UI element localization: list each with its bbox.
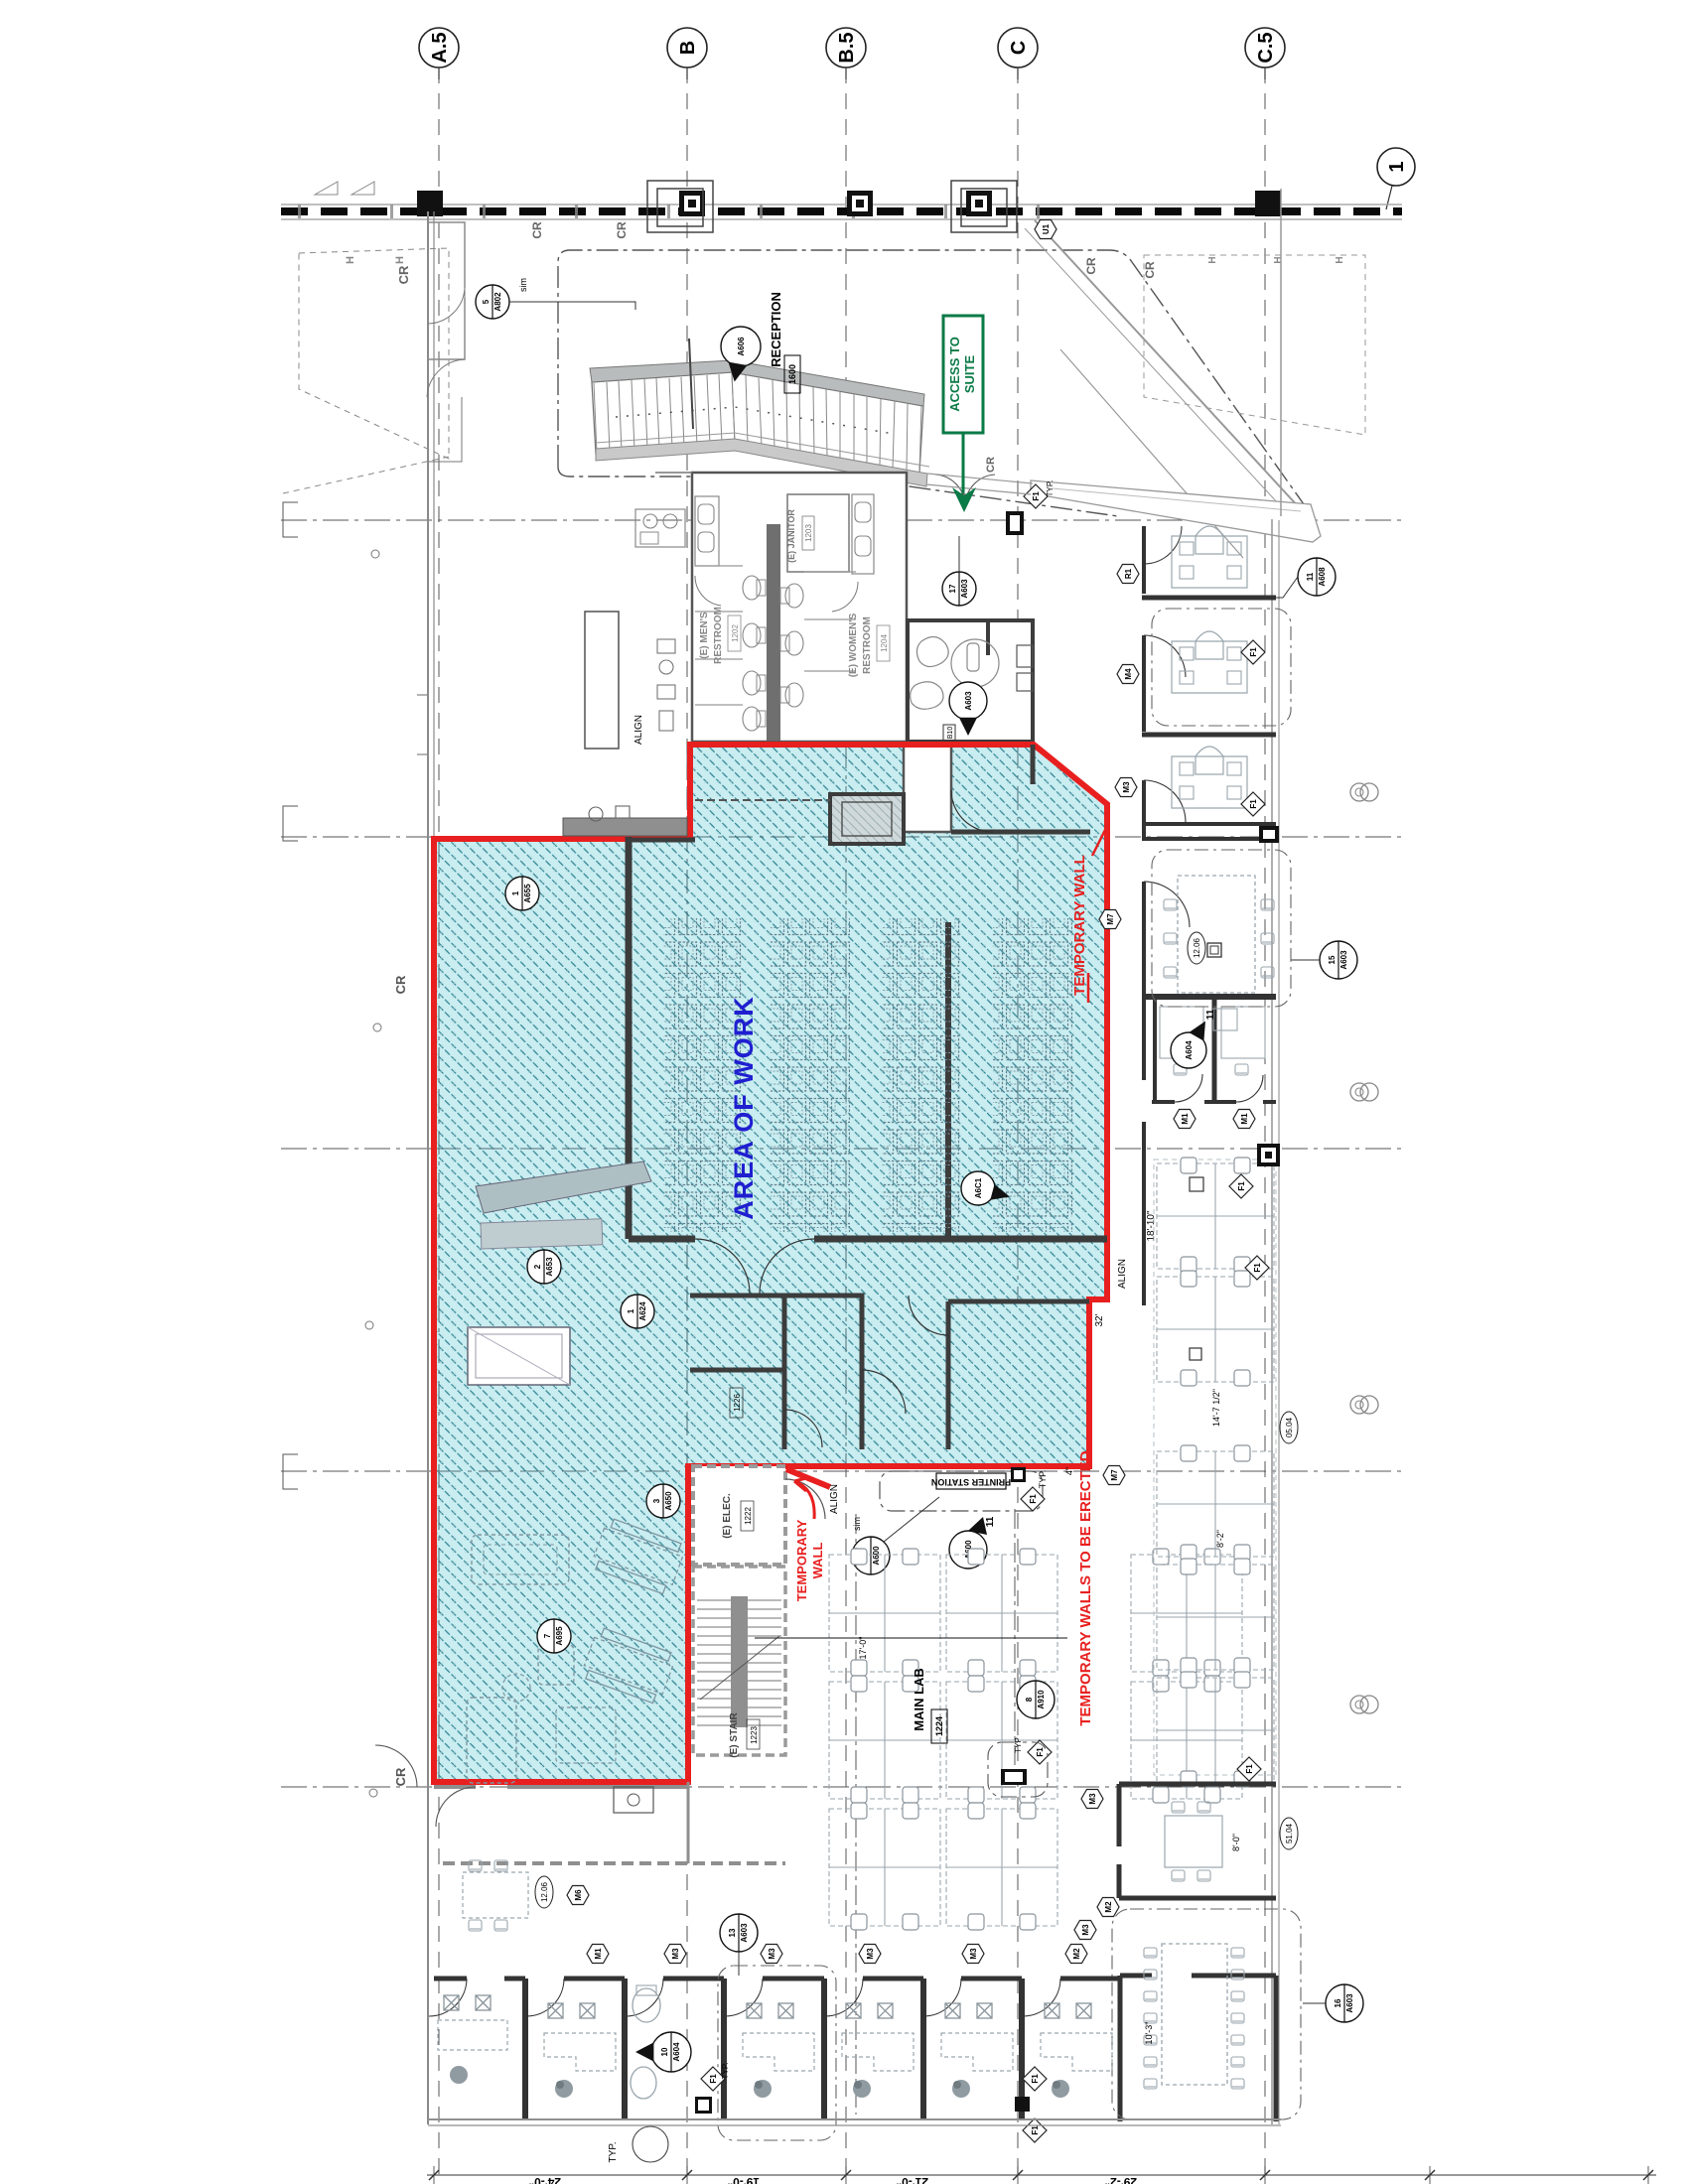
svg-text:sim: sim — [852, 1517, 862, 1531]
svg-text:1600: 1600 — [787, 364, 797, 384]
svg-text:8'-2": 8'-2" — [1215, 1530, 1225, 1548]
svg-text:ALIGN: ALIGN — [1117, 1259, 1128, 1289]
svg-text:M7: M7 — [1106, 913, 1115, 925]
svg-text:3: 3 — [652, 1498, 661, 1503]
svg-text:F1: F1 — [1036, 1747, 1045, 1757]
svg-text:19'-0": 19'-0" — [727, 2175, 760, 2184]
svg-text:A650: A650 — [664, 1491, 673, 1511]
svg-text:F1: F1 — [1031, 2125, 1040, 2135]
svg-text:12.06: 12.06 — [540, 1881, 549, 1902]
svg-text:(E) MEN'S: (E) MEN'S — [699, 612, 710, 659]
svg-text:CR: CR — [985, 457, 997, 473]
svg-text:1202: 1202 — [731, 624, 740, 642]
svg-text:B10: B10 — [947, 727, 954, 740]
svg-text:H: H — [1207, 256, 1218, 263]
svg-text:H: H — [1335, 256, 1345, 263]
svg-text:F1: F1 — [1029, 1494, 1038, 1504]
svg-text:R1: R1 — [1124, 568, 1133, 579]
svg-text:ALIGN: ALIGN — [829, 1484, 840, 1514]
svg-text:10: 10 — [660, 2047, 669, 2056]
svg-text:A695: A695 — [555, 1626, 564, 1646]
svg-text:F1: F1 — [1249, 799, 1258, 809]
svg-text:4": 4" — [1064, 1467, 1074, 1475]
svg-text:C: C — [1008, 41, 1030, 55]
svg-text:A6C1: A6C1 — [974, 1177, 983, 1198]
svg-text:F1: F1 — [1245, 1764, 1254, 1774]
svg-text:11: 11 — [1205, 1009, 1216, 1020]
svg-text:05.04: 05.04 — [1285, 1417, 1294, 1437]
svg-text:8'-0": 8'-0" — [1231, 1834, 1241, 1851]
svg-text:CR: CR — [1084, 257, 1098, 275]
svg-text:A.5: A.5 — [429, 32, 451, 63]
svg-text:1204: 1204 — [880, 634, 889, 652]
svg-text:A802: A802 — [493, 292, 502, 312]
svg-text:15: 15 — [1328, 955, 1336, 964]
svg-text:A653: A653 — [545, 1257, 554, 1277]
svg-text:17: 17 — [948, 584, 957, 593]
svg-text:SUITE: SUITE — [962, 355, 977, 394]
svg-text:A603: A603 — [964, 691, 973, 711]
svg-text:A604: A604 — [672, 2042, 681, 2062]
svg-text:H: H — [394, 256, 406, 264]
svg-text:12.06: 12.06 — [1193, 937, 1201, 958]
svg-text:18'-10": 18'-10" — [1146, 1210, 1157, 1241]
svg-text:M3: M3 — [1081, 1924, 1090, 1936]
svg-text:10'-3": 10'-3" — [1144, 2022, 1154, 2045]
svg-text:M7: M7 — [1110, 1469, 1119, 1481]
svg-text:CR: CR — [1143, 261, 1157, 279]
svg-text:M3: M3 — [671, 1948, 680, 1960]
svg-text:M3: M3 — [866, 1948, 875, 1960]
svg-text:A606: A606 — [737, 337, 746, 356]
svg-text:2: 2 — [533, 1264, 542, 1269]
svg-text:RESTROOM: RESTROOM — [713, 607, 724, 664]
svg-text:A603: A603 — [1345, 1993, 1354, 2013]
svg-text:(E) ELEC.: (E) ELEC. — [722, 1493, 733, 1539]
svg-text:F1: F1 — [1032, 491, 1041, 501]
svg-text:M3: M3 — [768, 1948, 776, 1960]
svg-text:1: 1 — [511, 890, 520, 895]
svg-text:(E) STAIR: (E) STAIR — [729, 1712, 740, 1758]
svg-text:RESTROOM: RESTROOM — [862, 616, 873, 674]
svg-text:16: 16 — [1334, 1998, 1342, 2007]
svg-text:AREA OF WORK: AREA OF WORK — [729, 996, 759, 1219]
svg-text:MAIN LAB: MAIN LAB — [912, 1668, 926, 1731]
svg-text:F1: F1 — [709, 2074, 718, 2084]
svg-text:M2: M2 — [1072, 1948, 1081, 1960]
svg-text:M4: M4 — [1124, 668, 1133, 680]
svg-text:TEMPORARY: TEMPORARY — [794, 1519, 809, 1601]
svg-text:A655: A655 — [523, 884, 532, 903]
svg-text:M1: M1 — [1240, 1113, 1249, 1125]
svg-text:14'-7 1/2": 14'-7 1/2" — [1211, 1389, 1221, 1427]
svg-text:RECEPTION: RECEPTION — [769, 292, 783, 367]
svg-text:TYP.: TYP. — [608, 2142, 619, 2163]
svg-text:B.5: B.5 — [836, 32, 858, 63]
svg-text:5: 5 — [482, 299, 491, 304]
svg-text:B: B — [677, 41, 699, 55]
svg-text:(E) JANITOR: (E) JANITOR — [786, 509, 796, 563]
svg-text:1203: 1203 — [804, 524, 813, 542]
svg-text:M6: M6 — [574, 1889, 583, 1901]
svg-text:(E) WOMEN'S: (E) WOMEN'S — [848, 613, 859, 677]
svg-text:29'-2": 29'-2" — [1104, 2175, 1137, 2184]
svg-text:CR: CR — [615, 221, 629, 239]
svg-text:F1: F1 — [1031, 2074, 1040, 2084]
svg-text:M3: M3 — [1122, 781, 1131, 793]
svg-text:CR: CR — [393, 975, 408, 994]
svg-text:TEMPORARY WALL: TEMPORARY WALL — [1071, 855, 1088, 996]
svg-text:M2: M2 — [1104, 1901, 1113, 1913]
svg-text:TYP.: TYP. — [1038, 1470, 1048, 1489]
svg-text:21'-0": 21'-0" — [896, 2175, 928, 2184]
svg-text:WALL: WALL — [810, 1543, 825, 1579]
svg-text:A910: A910 — [1037, 1690, 1046, 1709]
svg-text:8: 8 — [1025, 1697, 1034, 1702]
svg-text:A603: A603 — [960, 579, 969, 599]
svg-text:1: 1 — [627, 1308, 635, 1313]
svg-text:ACCESS TO: ACCESS TO — [947, 337, 962, 412]
svg-text:A608: A608 — [1318, 567, 1327, 587]
svg-text:TYP.: TYP. — [1046, 480, 1055, 497]
svg-text:A624: A624 — [638, 1301, 647, 1321]
svg-text:M3: M3 — [1088, 1793, 1097, 1805]
svg-text:CR: CR — [396, 265, 411, 284]
svg-text:1222: 1222 — [744, 1507, 753, 1525]
svg-text:PRINTER STATION: PRINTER STATION — [931, 1477, 1011, 1487]
svg-text:1223: 1223 — [750, 1726, 759, 1744]
svg-text:51.04: 51.04 — [1285, 1823, 1294, 1843]
svg-text:H: H — [345, 256, 356, 264]
svg-text:A603: A603 — [740, 1923, 749, 1943]
svg-text:A603: A603 — [1339, 950, 1348, 970]
svg-text:1226: 1226 — [733, 1394, 742, 1412]
svg-text:1: 1 — [1386, 161, 1408, 172]
svg-text:1224: 1224 — [934, 1716, 944, 1736]
svg-text:F1: F1 — [1237, 1181, 1246, 1191]
svg-text:M3: M3 — [969, 1948, 978, 1960]
svg-text:F1: F1 — [1253, 1263, 1262, 1273]
svg-text:sim: sim — [518, 278, 528, 292]
svg-text:F1: F1 — [1249, 647, 1258, 657]
svg-text:11: 11 — [1306, 572, 1315, 581]
svg-text:13: 13 — [728, 1928, 737, 1937]
svg-text:17'-0": 17'-0" — [858, 1637, 868, 1660]
svg-text:TEMPORARY WALLS TO BE ERECTED: TEMPORARY WALLS TO BE ERECTED — [1077, 1450, 1094, 1725]
svg-text:24'-0": 24'-0" — [528, 2175, 561, 2184]
svg-text:TYP: TYP — [1014, 1737, 1023, 1753]
svg-text:11: 11 — [985, 1516, 996, 1527]
svg-text:U1: U1 — [1042, 223, 1051, 234]
svg-text:A600: A600 — [872, 1546, 881, 1566]
svg-text:C.5: C.5 — [1255, 32, 1277, 63]
svg-text:M1: M1 — [1181, 1113, 1190, 1125]
svg-text:ALIGN: ALIGN — [633, 715, 644, 745]
svg-text:CR: CR — [393, 1767, 408, 1786]
svg-text:H: H — [1273, 256, 1284, 263]
svg-text:32': 32' — [1094, 1313, 1105, 1326]
svg-text:7: 7 — [543, 1633, 552, 1638]
svg-text:TYP.: TYP. — [721, 2063, 730, 2080]
svg-text:M1: M1 — [594, 1948, 603, 1960]
svg-text:CR: CR — [530, 221, 544, 239]
svg-text:A604: A604 — [1185, 1040, 1194, 1060]
